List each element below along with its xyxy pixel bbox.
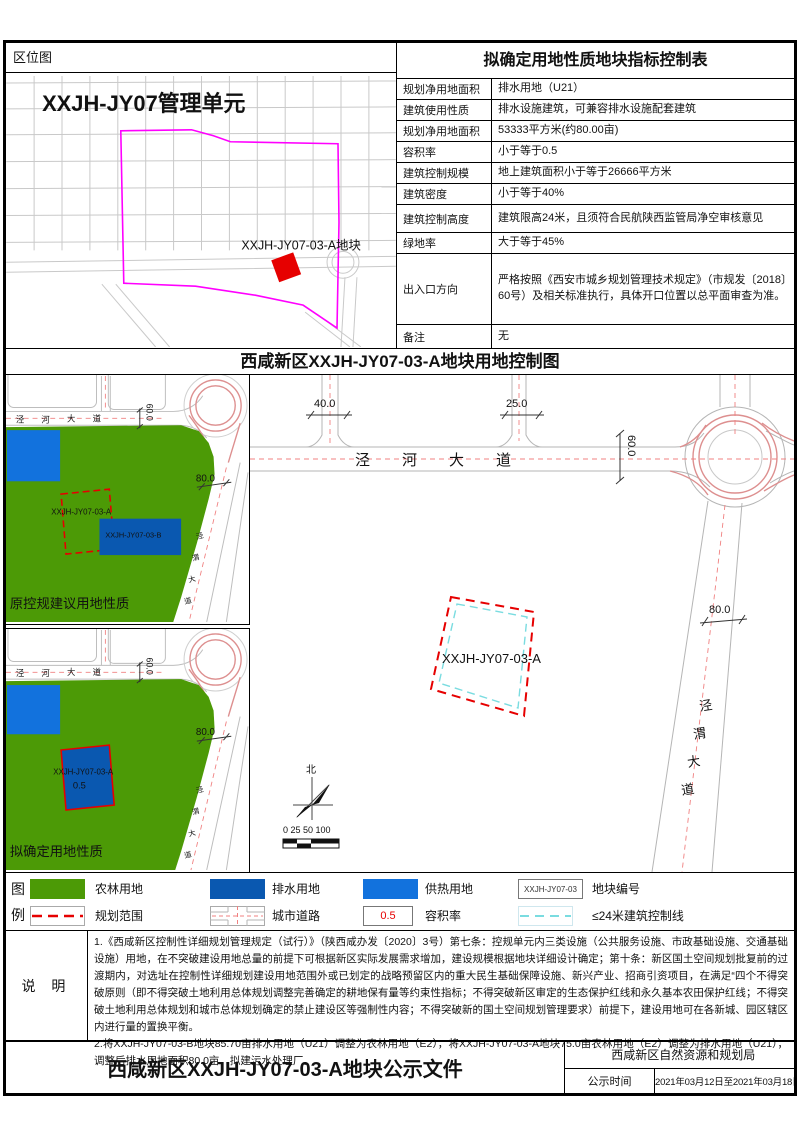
indicator-table-title: 拟确定用地性质地块指标控制表 (397, 43, 794, 79)
parcel-marker-label: XXJH-JY07-03-A地块 (241, 238, 361, 252)
scale-label: 0 25 50 100 (283, 825, 331, 835)
control-map-title: 西咸新区XXJH-JY07-03-A地块用地控制图 (6, 348, 794, 375)
agency-name: 西咸新区自然资源和规划局 (565, 1042, 797, 1069)
row-label: 建筑控制规模 (397, 163, 492, 183)
svg-text:泾: 泾 (698, 697, 713, 714)
svg-text:大: 大 (187, 574, 197, 585)
dim-60-label: 60.0 (625, 435, 637, 456)
row-value: 建筑限高24米，且须符合民航陕西监管局净空审核意见 (492, 205, 794, 232)
dim-60-label: 60.0 (145, 404, 155, 421)
svg-text:大: 大 (449, 452, 464, 469)
svg-text:道: 道 (183, 849, 193, 860)
svg-text:泾: 泾 (16, 414, 25, 424)
parcel-b-label: XXJH-JY07-03-B (105, 530, 161, 539)
row-value: 小于等于40% (492, 184, 794, 204)
table-row: 建筑控制高度 建筑限高24米，且须符合民航陕西监管局净空审核意见 (397, 205, 794, 233)
svg-text:大: 大 (187, 828, 197, 839)
original-plan-canvas: 泾 河 大 道 泾 渭 大 道 60.0 80.0 (6, 375, 249, 623)
parcel-code: XXJH-JY07-03 (524, 885, 577, 894)
dim-80-label: 80.0 (196, 473, 216, 484)
legend-label: 城市道路 (272, 906, 320, 926)
dimension-40 (306, 411, 352, 419)
row-value: 53333平方米(约80.00亩) (492, 121, 794, 141)
table-row: 出入口方向 严格按照《西安市城乡规划管理技术规定》（市规发〔2018〕60号）及… (397, 254, 794, 325)
svg-text:道: 道 (183, 595, 193, 606)
legend-col-char: 图 (9, 879, 27, 899)
svg-text:渭: 渭 (692, 725, 707, 742)
row-label: 规划净用地面积 (397, 121, 492, 141)
parcel-a-far: 0.5 (73, 780, 86, 790)
note-paragraph-1: 1.《西咸新区控制性详细规划管理规定（试行）》（陕西咸办发〔2020〕3号）第七… (94, 934, 788, 1036)
proposed-plan-map: 泾 河 大 道 泾 渭 大 道 60.0 80.0 (6, 628, 250, 872)
svg-text:渭: 渭 (191, 806, 200, 817)
row-value: 排水设施建筑，可兼容排水设施配套建筑 (492, 100, 794, 120)
location-map-canvas: XXJH-JY07管理单元 XXJH-JY07-03-A地块 (6, 73, 396, 347)
publish-row: 公示时间 2021年03月12日至2021年03月18日 (565, 1069, 797, 1093)
table-row: 绿地率 大于等于45% (397, 233, 794, 254)
dim-25-label: 25.0 (506, 398, 527, 410)
svg-text:道: 道 (496, 452, 511, 469)
notes-header: 说 明 (6, 931, 88, 1040)
plan-boundary-swatch-canvas (30, 906, 85, 926)
legend-label: 供热用地 (425, 879, 473, 899)
parcel-code-swatch: XXJH-JY07-03 (518, 879, 583, 899)
location-map-header: 区位图 (6, 43, 397, 73)
legend-label: 容积率 (425, 906, 461, 926)
legend-col-char: 例 (9, 905, 27, 925)
row-label: 容积率 (397, 142, 492, 162)
farm-land-swatch (30, 879, 85, 899)
svg-text:泾: 泾 (195, 531, 205, 542)
indicator-table: 拟确定用地性质地块指标控制表 规划净用地面积 排水用地（U21） 建筑使用性质 … (397, 43, 794, 348)
legend-label: 规划范围 (95, 906, 143, 926)
road-centerlines (250, 375, 794, 872)
svg-text:道: 道 (93, 667, 102, 677)
svg-text:河: 河 (41, 414, 50, 424)
table-row: 规划净用地面积 53333平方米(约80.00亩) (397, 121, 794, 142)
heating-land-swatch (363, 879, 418, 899)
table-row: 建筑控制规模 地上建筑面积小于等于26666平方米 (397, 163, 794, 184)
roads (250, 375, 794, 872)
row-value: 地上建筑面积小于等于26666平方米 (492, 163, 794, 183)
table-row: 规划净用地面积 排水用地（U21） (397, 79, 794, 100)
footer-right: 西咸新区自然资源和规划局 公示时间 2021年03月12日至2021年03月18… (565, 1042, 797, 1093)
legend-label: 排水用地 (272, 879, 320, 899)
svg-text:大: 大 (67, 667, 75, 677)
heating-land-parcel (7, 685, 60, 734)
table-row: 建筑密度 小于等于40% (397, 184, 794, 205)
city-road-swatch-canvas (210, 906, 265, 926)
public-notice-document: 区位图 XXJH-JY07管理单元 (0, 0, 800, 1133)
dim-60-label: 60.0 (145, 658, 155, 675)
table-row: 建筑使用性质 排水设施建筑，可兼容排水设施配套建筑 (397, 100, 794, 121)
legend-label: 地块编号 (592, 879, 640, 899)
document-frame: 区位图 XXJH-JY07管理单元 (3, 40, 797, 1096)
publish-label: 公示时间 (565, 1069, 655, 1093)
dim-80-label: 80.0 (709, 604, 730, 616)
legend: 图 例 农林用地 排水用地 供热用地 XXJH-JY07-03 地块编号 规划范… (6, 872, 794, 930)
publish-dates: 2021年03月12日至2021年03月18日 (655, 1069, 797, 1093)
parcel-label: XXJH-JY07-03-A (442, 651, 541, 666)
dim-80-label: 80.0 (196, 727, 216, 738)
proposed-plan-canvas: 泾 河 大 道 泾 渭 大 道 60.0 80.0 (6, 629, 249, 871)
height-control-swatch (518, 906, 573, 926)
plan-boundary-swatch (30, 906, 85, 926)
document-title: 西咸新区XXJH-JY07-03-A地块公示文件 (6, 1042, 565, 1093)
svg-text:河: 河 (41, 668, 50, 678)
row-label: 出入口方向 (397, 254, 492, 324)
unit-title: XXJH-JY07管理单元 (42, 91, 245, 116)
row-label: 规划净用地面积 (397, 79, 492, 99)
jinghe-road-label: 泾 河 大 道 (16, 667, 102, 678)
svg-text:道: 道 (680, 781, 695, 798)
svg-text:泾: 泾 (195, 784, 205, 795)
jinghe-road-label: 泾 河 大 道 (16, 413, 102, 424)
scale-bar: 0 25 50 100 (283, 825, 339, 848)
row-value: 严格按照《西安市城乡规划管理技术规定》（市规发〔2018〕60号）及相关标准执行… (492, 254, 794, 324)
svg-text:泾: 泾 (16, 668, 25, 678)
map-caption: 拟确定用地性质 (10, 844, 103, 859)
drainage-land-swatch (210, 879, 265, 899)
original-plan-map: 泾 河 大 道 泾 渭 大 道 60.0 80.0 (6, 375, 250, 625)
far-value: 0.5 (380, 910, 395, 922)
svg-text:大: 大 (686, 753, 701, 770)
row-label: 建筑控制高度 (397, 205, 492, 232)
land-use-control-map: XXJH-JY07-03-A 泾 河 大 道 泾 渭 大 道 40.0 25. (250, 375, 794, 872)
svg-text:河: 河 (402, 452, 417, 469)
parcel-a-label: XXJH-JY07-03-A (51, 508, 112, 517)
svg-text:道: 道 (93, 413, 102, 423)
jinghe-road-label: 泾 河 大 道 (355, 452, 511, 469)
row-label: 建筑使用性质 (397, 100, 492, 120)
control-map-canvas: XXJH-JY07-03-A 泾 河 大 道 泾 渭 大 道 40.0 25. (250, 375, 794, 872)
row-value: 无 (492, 325, 794, 348)
svg-text:泾: 泾 (355, 452, 370, 469)
north-label: 北 (306, 764, 316, 776)
row-value: 排水用地（U21） (492, 79, 794, 99)
parcel-a-label: XXJH-JY07-03-A (53, 768, 114, 777)
row-value: 小于等于0.5 (492, 142, 794, 162)
footer: 西咸新区XXJH-JY07-03-A地块公示文件 西咸新区自然资源和规划局 公示… (6, 1040, 794, 1093)
legend-label: ≤24米建筑控制线 (592, 906, 684, 926)
parcel-marker (271, 252, 301, 282)
dimension-80 (700, 615, 747, 626)
notes-section: 说 明 1.《西咸新区控制性详细规划管理规定（试行）》（陕西咸办发〔2020〕3… (6, 930, 794, 1040)
row-label: 建筑密度 (397, 184, 492, 204)
map-caption: 原控规建议用地性质 (10, 596, 129, 611)
svg-text:大: 大 (67, 413, 75, 423)
table-row: 备注 无 (397, 325, 794, 348)
city-road-swatch (210, 906, 265, 926)
row-label: 绿地率 (397, 233, 492, 253)
table-row: 容积率 小于等于0.5 (397, 142, 794, 163)
location-map: XXJH-JY07管理单元 XXJH-JY07-03-A地块 (6, 73, 397, 348)
legend-label: 农林用地 (95, 879, 143, 899)
drainage-parcel-a (61, 745, 114, 810)
far-swatch: 0.5 (363, 906, 413, 926)
dim-40-label: 40.0 (314, 398, 335, 410)
heating-land-parcel (7, 430, 60, 481)
notes-body: 1.《西咸新区控制性详细规划管理规定（试行）》（陕西咸办发〔2020〕3号）第七… (88, 931, 794, 1040)
svg-text:渭: 渭 (191, 552, 200, 563)
height-control-swatch-canvas (518, 906, 573, 926)
dimension-60 (616, 430, 624, 484)
row-value: 大于等于45% (492, 233, 794, 253)
dimension-25 (500, 411, 544, 419)
north-arrow: 北 (293, 764, 333, 820)
row-label: 备注 (397, 325, 492, 348)
